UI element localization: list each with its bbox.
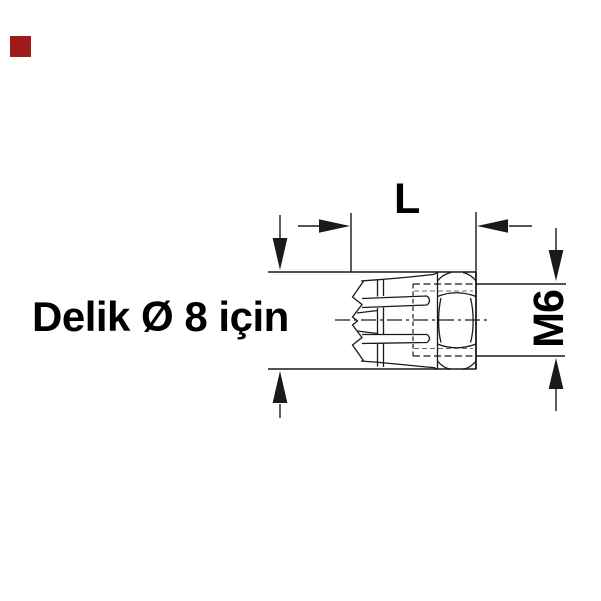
tip-facet-line-upper	[357, 311, 378, 314]
collet-top-edge	[361, 272, 438, 281]
up-arrowhead	[549, 358, 564, 389]
right-arrowhead	[319, 219, 350, 233]
hex-chamfer-bottom-right	[463, 361, 476, 369]
length-dimension-label: L	[394, 178, 420, 221]
tip-facet-line-lower	[357, 331, 378, 334]
insert-hex-section	[438, 272, 477, 370]
up-arrowhead	[273, 371, 288, 403]
hex-facet-top	[438, 293, 477, 297]
dimension-hole-diameter	[268, 215, 476, 418]
slot-upper	[362, 296, 430, 308]
hex-chamfer-top-right	[463, 273, 476, 282]
left-arrowhead	[477, 219, 508, 233]
hex-facet-bottom	[438, 344, 477, 348]
insert-collet	[353, 272, 438, 369]
down-arrowhead	[549, 250, 564, 281]
thread-dimension-label: M6	[527, 279, 571, 359]
hole-size-note: Delik Ø 8 için	[32, 296, 289, 338]
slot-lower	[362, 335, 430, 344]
collet-serrated-tip	[353, 281, 365, 362]
hex-chamfer-bottom-left	[438, 361, 452, 369]
hex-chamfer-top-left	[438, 273, 452, 282]
catalog-drawing-page: Delik Ø 8 için L M6	[0, 0, 601, 601]
down-arrowhead	[273, 238, 288, 270]
collet-bottom-edge	[361, 361, 438, 370]
